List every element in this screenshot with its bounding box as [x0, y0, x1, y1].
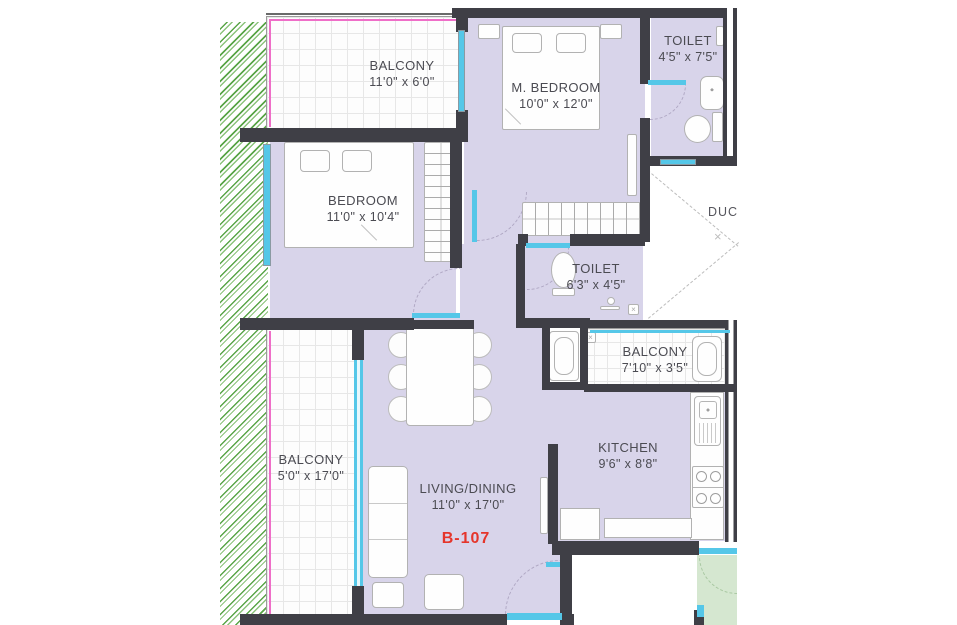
wall-mbed-right-b — [640, 118, 650, 242]
window-mbedroom-balcony — [458, 30, 465, 112]
wall-kitchen-right — [725, 392, 737, 542]
wall-toilet-mid-left — [516, 244, 525, 328]
mbed-pillow — [556, 33, 586, 53]
balcony-top-outline — [266, 13, 470, 15]
utility-sink-inner — [697, 342, 717, 376]
duct-diagonal-line — [648, 242, 739, 319]
room-label-bedroom: BEDROOM 11'0" x 10'4" — [327, 193, 400, 224]
room-name: BALCONY — [622, 344, 688, 359]
door-sill-main — [507, 613, 562, 620]
wall-kitchen-bottom — [552, 541, 699, 555]
wall-bath-bottom — [542, 382, 588, 390]
wall-balcony-right-top — [586, 320, 737, 328]
toilet-top-wc-bowl — [684, 115, 711, 143]
unit-number: B-107 — [442, 530, 491, 548]
room-name: TOILET — [566, 261, 625, 276]
mbed-dresser-mirror — [627, 134, 637, 196]
room-label-m-bedroom: M. BEDROOM 10'0" x 12'0" — [511, 80, 600, 111]
hob-burner — [710, 471, 721, 482]
wall-balcony-left-divider-top — [352, 318, 364, 360]
room-name: M. BEDROOM — [511, 80, 600, 95]
kitchen-sink-unit — [694, 396, 721, 446]
kitchen-sink-basin — [699, 401, 717, 419]
tv-unit — [540, 477, 548, 534]
wall-right-top — [723, 8, 737, 166]
room-label-toilet-top: TOILET 4'5" x 7'5" — [658, 33, 717, 64]
toilet-mid-shower-head — [607, 297, 615, 305]
wall-bedroom-bottom — [240, 318, 414, 330]
door-leaf-main — [546, 562, 560, 567]
room-label-kitchen: KITCHEN 9'6" x 8'8" — [598, 440, 658, 471]
door-leaf-toilet-top — [648, 80, 686, 85]
room-label-balcony-top: BALCONY 11'0" x 6'0" — [369, 58, 434, 89]
wall-balcony-right-bottom — [584, 384, 737, 392]
door-arc-entry — [699, 556, 737, 594]
door-leaf-entry — [697, 605, 704, 617]
sofa — [368, 466, 408, 578]
bedroom-pillow — [342, 150, 372, 172]
room-label-duct: DUCT — [708, 203, 737, 219]
hob-burner — [710, 493, 721, 504]
toilet-top-wc-tank — [712, 112, 723, 142]
room-label-living-dining: LIVING/DINING 11'0" x 17'0" — [420, 481, 517, 512]
threshold-entry — [699, 548, 737, 554]
bathtub-inner — [554, 337, 574, 375]
room-dims: 10'0" x 12'0" — [511, 97, 600, 111]
side-table — [372, 582, 404, 608]
mbed-side-table-left — [478, 24, 500, 39]
window-bedroom — [263, 144, 271, 266]
room-dims: 11'0" x 17'0" — [420, 498, 517, 512]
wall-bath-left — [542, 326, 550, 388]
door-arc-bedroom — [413, 268, 460, 315]
room-dims: 9'6" x 8'8" — [598, 457, 658, 471]
door-arc-toilet-top — [650, 84, 686, 120]
bedroom-pillow — [300, 150, 330, 172]
door-arc-main — [505, 560, 560, 615]
dining-table — [406, 326, 474, 426]
balcony-top-edge-line — [269, 19, 467, 21]
balcony-top-floor — [266, 16, 470, 130]
room-name: BEDROOM — [327, 193, 400, 208]
kitchen-counter-bottom — [604, 518, 692, 538]
room-label-balcony-left: BALCONY 5'0" x 17'0" — [278, 452, 344, 483]
slider-balcony-left — [354, 360, 363, 586]
wall-balcony-left-divider-bottom — [352, 586, 364, 616]
armchair — [424, 574, 464, 610]
hob-burner — [696, 493, 707, 504]
room-name: BALCONY — [278, 452, 344, 467]
room-dims: 11'0" x 10'4" — [327, 210, 400, 224]
mbed-side-table-right — [600, 24, 622, 39]
room-dims: 11'0" x 6'0" — [369, 75, 434, 89]
room-label-balcony-right: BALCONY 7'10" x 3'5" — [622, 344, 688, 375]
wall-bedroom-right — [450, 140, 462, 268]
hob-burner — [696, 471, 707, 482]
duct-cross-mark: × — [714, 229, 722, 244]
window-balcony-right — [590, 330, 730, 333]
toilet-mid-shower-arm — [600, 306, 620, 310]
wall-toilet-mid-bottom — [516, 318, 590, 328]
toilet-top-washbasin — [700, 76, 724, 110]
wall-mbed-right-a — [640, 18, 650, 84]
room-dims: 5'0" x 17'0" — [278, 469, 344, 483]
door-leaf-bedroom — [412, 313, 460, 318]
kitchen-drainboard — [699, 423, 717, 443]
window-toilet-top — [660, 159, 696, 165]
room-dims: 4'5" x 7'5" — [658, 50, 717, 64]
wall-bottom — [240, 614, 507, 625]
mbed-pillow — [512, 33, 542, 53]
balcony-left-edge-line — [269, 331, 271, 615]
wall-balcony-top-bottom — [240, 128, 468, 142]
room-name: KITCHEN — [598, 440, 658, 455]
toilet-mid-floor-drain: × — [628, 304, 639, 315]
mbed-wardrobe — [522, 202, 642, 236]
kitchen-hob — [692, 466, 724, 508]
room-name: TOILET — [658, 33, 717, 48]
wall-kitchen-left — [548, 444, 558, 544]
wall-toilet-mid-top — [570, 234, 645, 246]
wall-top — [452, 8, 737, 18]
room-label-toilet-mid: TOILET 6'3" x 4'5" — [566, 261, 625, 292]
kitchen-counter-left — [560, 508, 600, 540]
wall-bath-right — [580, 326, 588, 388]
floor-plan-b107: × — [0, 0, 957, 625]
room-name: DUCT — [708, 205, 737, 219]
door-leaf-toilet-mid — [526, 243, 570, 248]
balcony-top-edge-line-left — [269, 19, 271, 127]
door-leaf-mbedroom — [472, 190, 477, 242]
wall-bottom-stub — [560, 614, 574, 625]
room-dims: 7'10" x 3'5" — [622, 361, 688, 375]
room-name: BALCONY — [369, 58, 434, 73]
room-name: LIVING/DINING — [420, 481, 517, 496]
room-dims: 6'3" x 4'5" — [566, 278, 625, 292]
